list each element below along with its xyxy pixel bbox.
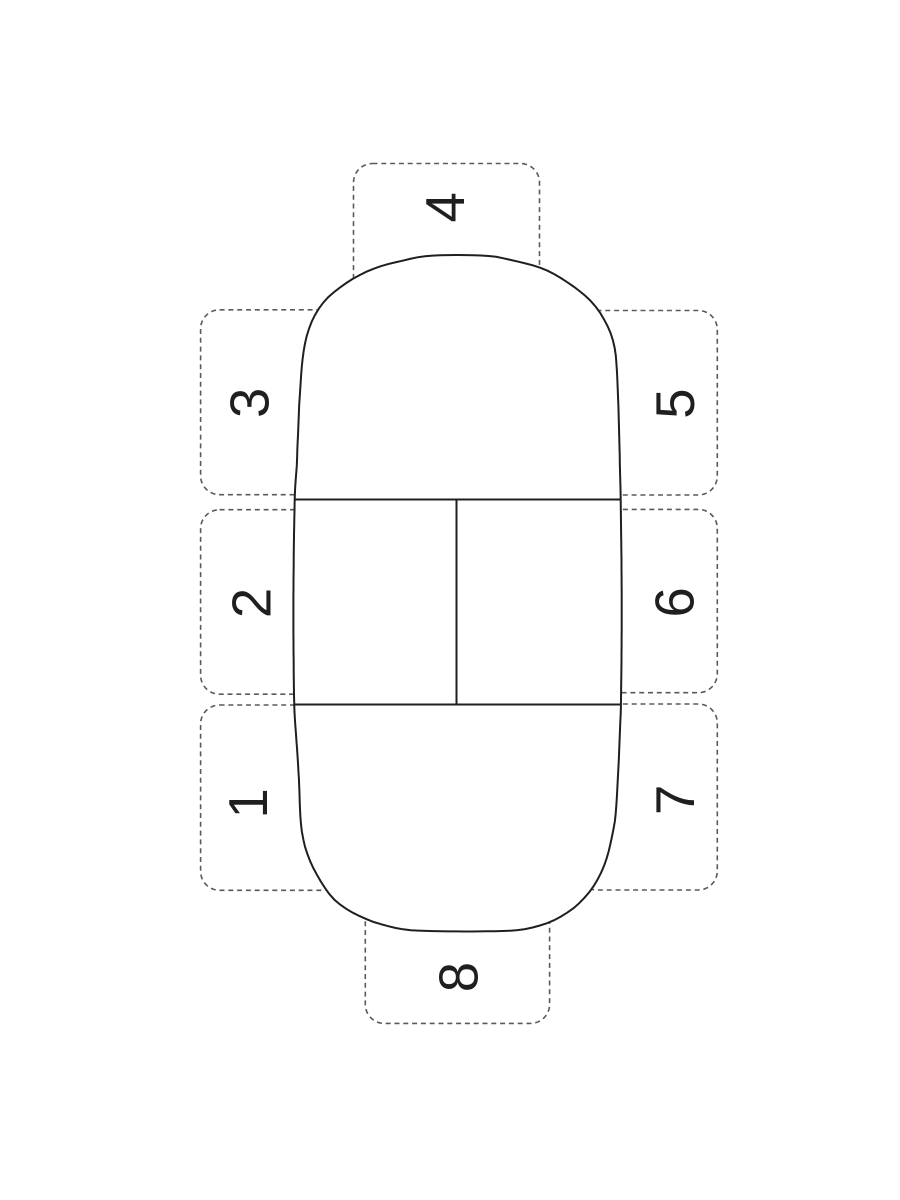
- svg-text:6: 6: [644, 587, 705, 617]
- svg-text:3: 3: [220, 388, 281, 418]
- svg-text:4: 4: [415, 192, 476, 222]
- svg-text:5: 5: [645, 388, 706, 418]
- svg-text:2: 2: [221, 588, 282, 618]
- svg-text:1: 1: [218, 788, 279, 818]
- svg-text:8: 8: [429, 962, 490, 992]
- svg-text:7: 7: [645, 785, 706, 815]
